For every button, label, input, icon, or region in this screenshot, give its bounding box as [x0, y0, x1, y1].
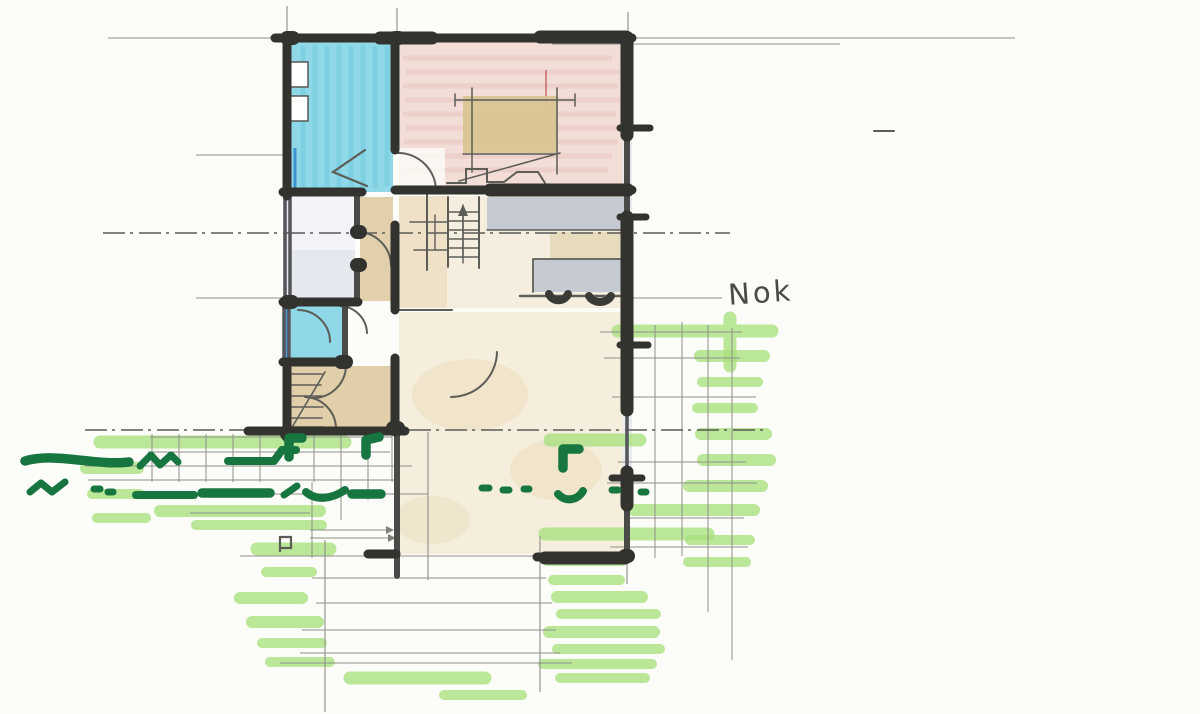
- kitchen-island: [533, 259, 625, 292]
- nok-label: Nok: [727, 273, 794, 311]
- second-bathroom-fill: [288, 306, 344, 360]
- kitchen-counter: [487, 197, 628, 230]
- bathroom-fixture: [289, 62, 308, 87]
- annotation-group: Nok: [727, 273, 794, 311]
- kitchen-tan-patch: [550, 232, 620, 258]
- floor-blotch: [412, 359, 528, 431]
- floor-blotch: [394, 496, 470, 544]
- wc-fill-shade: [291, 250, 355, 300]
- bathroom-fixture: [289, 96, 308, 121]
- scanned-floor-plan-sketch: Nok: [0, 0, 1200, 714]
- bed-fill: [463, 96, 558, 153]
- floor-plan-drawing: Nok: [0, 0, 1200, 714]
- corridor-fill: [360, 197, 393, 301]
